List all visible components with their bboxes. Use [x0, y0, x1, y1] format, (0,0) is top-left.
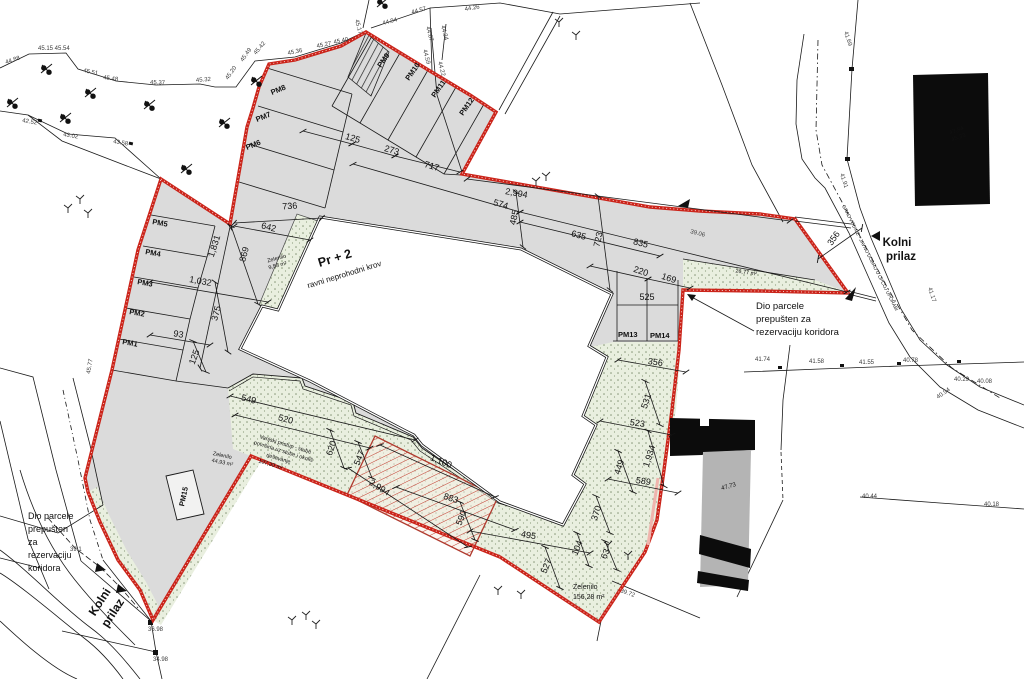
svg-text:Kolni: Kolni [883, 237, 912, 249]
svg-text:rezervaciju koridora: rezervaciju koridora [756, 327, 840, 338]
svg-text:356: 356 [647, 356, 663, 368]
svg-text:156,28 m²: 156,28 m² [573, 594, 605, 601]
svg-text:736: 736 [282, 200, 298, 211]
svg-text:40.29: 40.29 [954, 377, 970, 383]
svg-text:PM14: PM14 [650, 331, 670, 340]
svg-text:Zelenilo: Zelenilo [573, 584, 598, 591]
svg-text:45.15 45.54: 45.15 45.54 [38, 46, 70, 52]
svg-text:523: 523 [629, 417, 645, 429]
svg-text:koridora: koridora [28, 563, 61, 573]
svg-text:39.1: 39.1 [70, 547, 82, 553]
svg-text:za: za [28, 537, 38, 547]
svg-text:40.78: 40.78 [903, 358, 919, 364]
svg-text:41.58: 41.58 [809, 359, 825, 365]
svg-text:rezervaciju: rezervaciju [28, 550, 72, 560]
svg-text:36.98: 36.98 [148, 627, 164, 633]
svg-text:525: 525 [639, 292, 654, 302]
svg-text:45.32: 45.32 [196, 77, 212, 84]
svg-text:45.37: 45.37 [150, 80, 166, 87]
svg-text:prepušten: prepušten [28, 524, 68, 534]
svg-text:34.98: 34.98 [153, 657, 169, 663]
svg-text:589: 589 [635, 475, 651, 487]
svg-text:93: 93 [173, 328, 185, 340]
svg-text:prepušten za: prepušten za [756, 314, 812, 325]
svg-text:Dio parcele: Dio parcele [28, 511, 74, 521]
svg-text:PM13: PM13 [618, 330, 638, 339]
svg-text:41.74: 41.74 [755, 357, 771, 363]
svg-text:prilaz: prilaz [886, 251, 916, 263]
svg-text:Dio parcele: Dio parcele [756, 301, 804, 312]
svg-text:41.55: 41.55 [859, 360, 875, 366]
svg-text:40.08: 40.08 [977, 379, 993, 385]
